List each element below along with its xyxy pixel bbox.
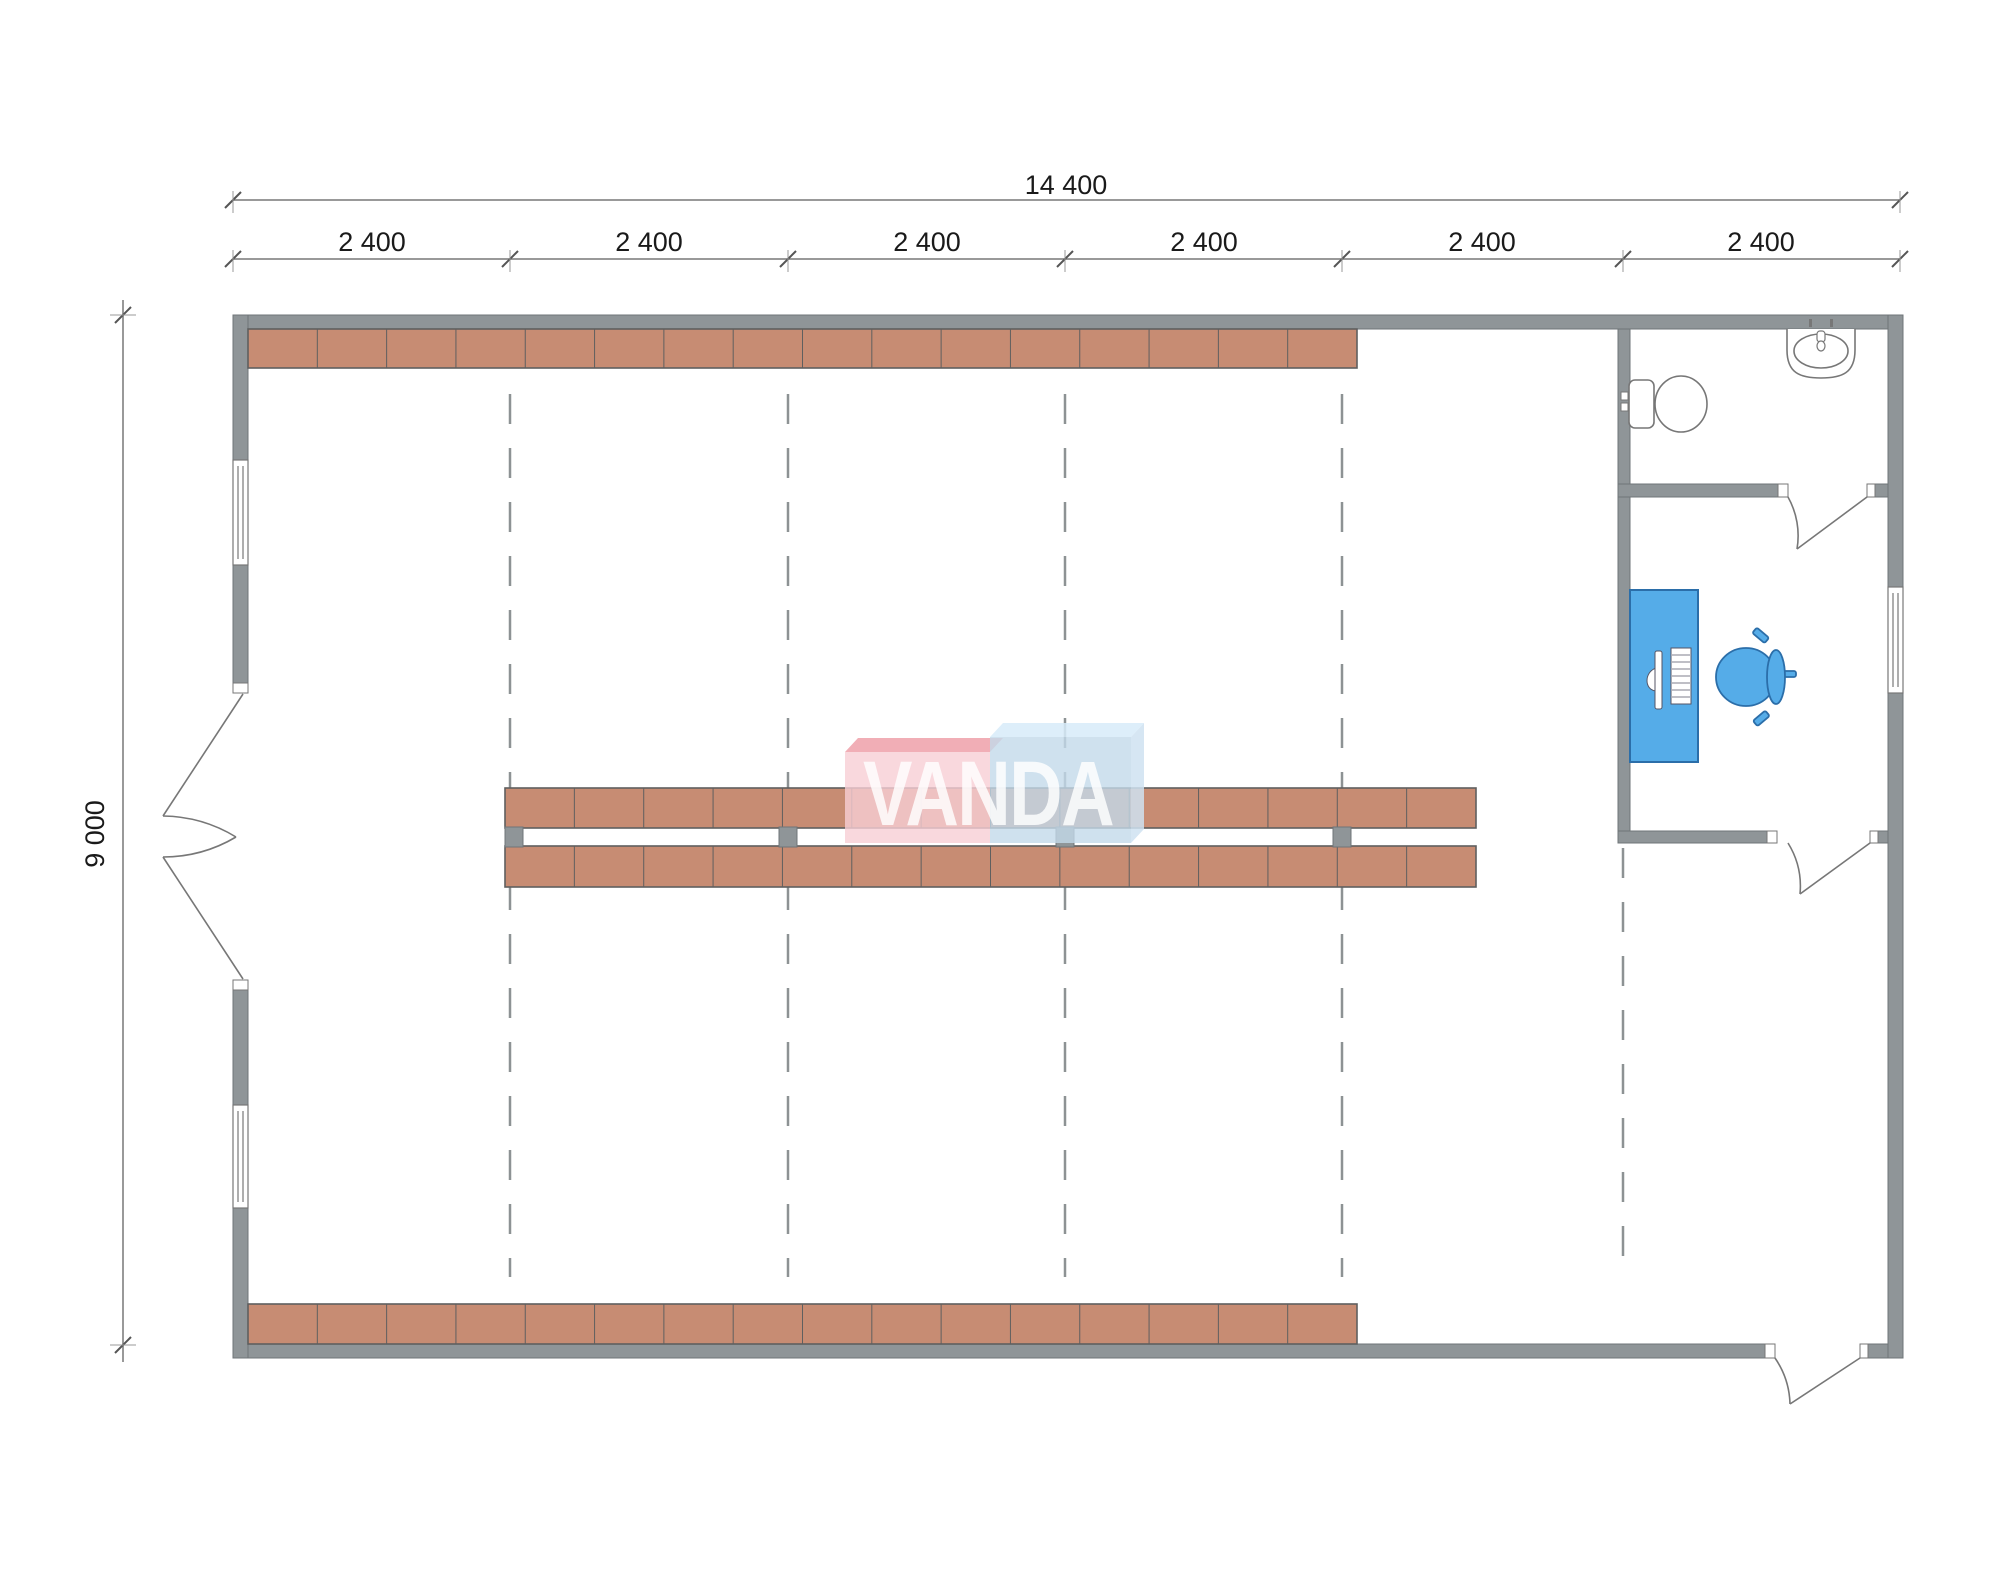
door-swing-arc bbox=[163, 837, 236, 857]
wall-bathroom-partition bbox=[1618, 484, 1788, 497]
floor-plan-drawing: 14 400 2 400 2 400 2 400 2 400 2 400 2 4… bbox=[0, 0, 2000, 1574]
door-jamb bbox=[1867, 484, 1875, 497]
door-jamb bbox=[1860, 1344, 1868, 1358]
shelf-row-bottom-wall bbox=[248, 1304, 1357, 1344]
keyboard bbox=[1671, 648, 1691, 704]
wall-left-seg-2 bbox=[233, 565, 248, 693]
door-leaf bbox=[1790, 1358, 1860, 1404]
wall-right-seg-2 bbox=[1888, 693, 1903, 1358]
door-jamb bbox=[233, 980, 248, 990]
door-jamb bbox=[1765, 1344, 1775, 1358]
wall-top bbox=[233, 315, 1903, 329]
doors bbox=[163, 497, 1870, 1404]
bathroom-door bbox=[1788, 497, 1867, 549]
shelf-post bbox=[1333, 827, 1351, 847]
office-chair bbox=[1716, 628, 1796, 727]
shelf-post bbox=[779, 827, 797, 847]
wall-bottom-left-span bbox=[233, 1344, 1775, 1358]
shelf-post bbox=[505, 827, 523, 847]
office-door bbox=[1788, 843, 1870, 894]
door-jamb bbox=[1767, 831, 1777, 843]
door-jamb bbox=[1870, 831, 1878, 843]
dim-label-bay-3: 2 400 bbox=[893, 227, 961, 257]
door-swing-arc bbox=[1788, 843, 1800, 894]
watermark-blue-box-top bbox=[990, 723, 1144, 737]
dim-label-bay-5: 2 400 bbox=[1448, 227, 1516, 257]
chair-armrest bbox=[1752, 628, 1769, 644]
door-jamb bbox=[233, 683, 248, 693]
wall-office-partition bbox=[1618, 831, 1777, 843]
chair-armrest bbox=[1753, 711, 1770, 727]
shelf-row-center-lower bbox=[505, 846, 1476, 887]
bathroom-fixtures bbox=[1621, 319, 1855, 432]
door-leaf bbox=[163, 857, 243, 979]
dim-label-height: 9 000 bbox=[80, 800, 110, 868]
left-window-upper bbox=[233, 460, 248, 565]
watermark-text: VANDA bbox=[863, 743, 1113, 845]
door-jamb bbox=[1778, 484, 1788, 497]
toilet bbox=[1621, 376, 1707, 432]
door-leaf bbox=[1800, 843, 1870, 894]
wall-left-seg-1 bbox=[233, 315, 248, 460]
door-swing-arc bbox=[1788, 497, 1798, 549]
dim-label-bay-1: 2 400 bbox=[338, 227, 406, 257]
door-leaf bbox=[1797, 497, 1867, 549]
dim-label-bay-6: 2 400 bbox=[1727, 227, 1795, 257]
dim-label-bay-2: 2 400 bbox=[615, 227, 683, 257]
watermark-blue-box-side bbox=[1131, 723, 1144, 843]
office-furniture bbox=[1630, 590, 1796, 762]
door-swing-arc bbox=[1775, 1358, 1790, 1404]
shelf-row-top-wall bbox=[248, 329, 1357, 368]
door-swing-arc bbox=[163, 816, 236, 837]
wall-right-seg-1 bbox=[1888, 315, 1903, 587]
floor-plan-page: 14 400 2 400 2 400 2 400 2 400 2 400 2 4… bbox=[0, 0, 2000, 1574]
wall-left-seg-3 bbox=[233, 980, 248, 1105]
dim-label-total-width: 14 400 bbox=[1025, 170, 1108, 200]
watermark: VANDA bbox=[845, 723, 1144, 845]
chair-backrest bbox=[1767, 650, 1785, 704]
wall-left-seg-4 bbox=[233, 1208, 248, 1358]
door-leaf bbox=[163, 694, 243, 816]
left-window-lower bbox=[233, 1105, 248, 1208]
dim-label-bay-4: 2 400 bbox=[1170, 227, 1238, 257]
double-entry-door-left bbox=[163, 694, 243, 979]
office-window-right bbox=[1888, 587, 1903, 693]
exit-door-bottom-right bbox=[1775, 1358, 1860, 1404]
